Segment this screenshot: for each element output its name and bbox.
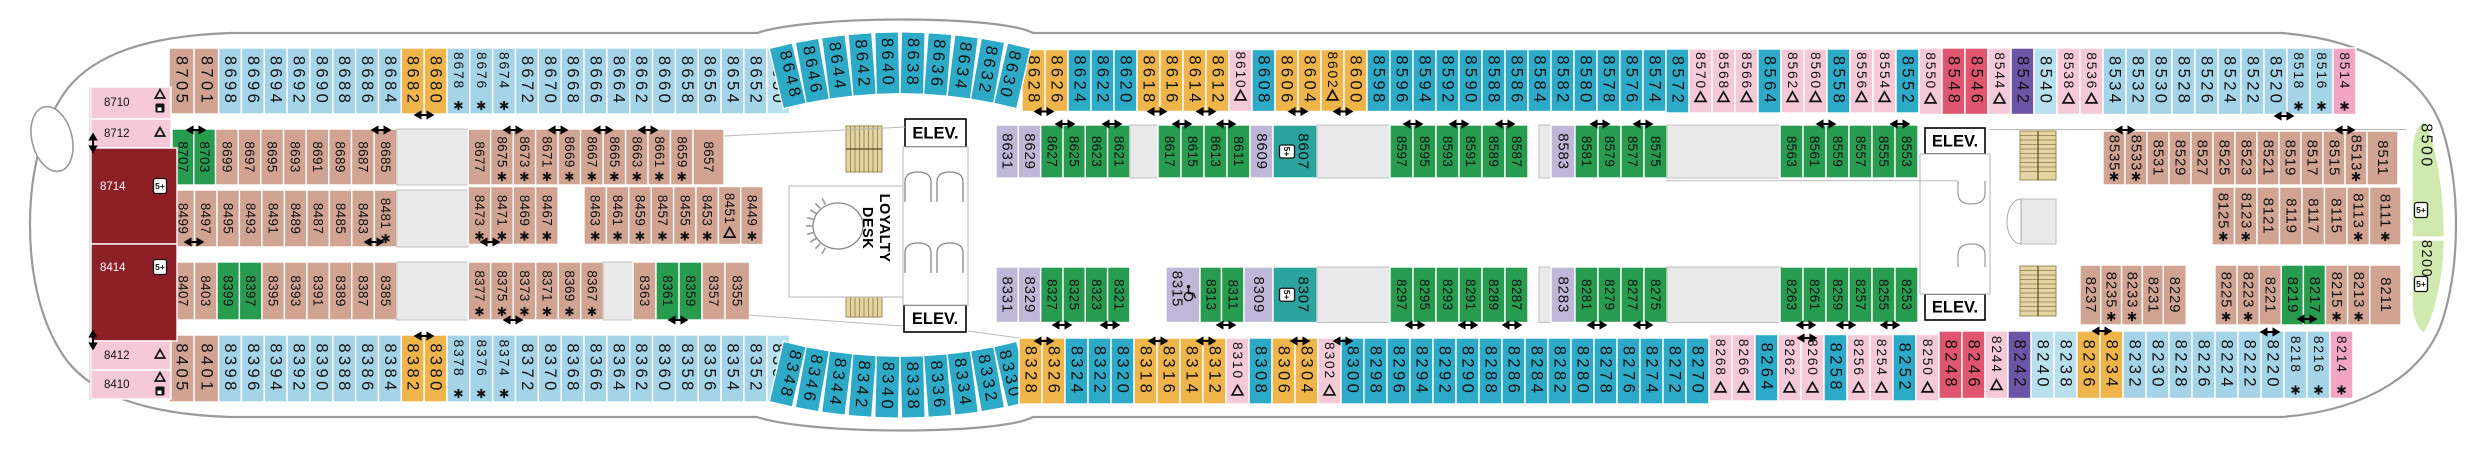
svg-text:8677: 8677 [472,141,487,172]
svg-text:8590: 8590 [1462,55,1480,105]
svg-text:8253: 8253 [1899,279,1914,310]
svg-text:8592: 8592 [1439,55,1457,105]
svg-text:8370: 8370 [541,343,559,393]
svg-text:8584: 8584 [1531,55,1549,105]
svg-text:8355: 8355 [730,275,745,306]
svg-text:8211: 8211 [2377,277,2394,312]
svg-text:8469: 8469 [517,195,532,226]
svg-text:8223: 8223 [2240,272,2257,309]
svg-text:8606: 8606 [1278,55,1296,105]
svg-text:8121: 8121 [2260,198,2277,235]
svg-text:8123: 8123 [2237,193,2254,230]
svg-text:DESK: DESK [859,207,875,249]
svg-text:8222: 8222 [2241,340,2259,390]
svg-text:8313: 8313 [1203,279,1218,310]
svg-text:5+: 5+ [2416,205,2426,215]
svg-text:8368: 8368 [564,343,582,393]
svg-text:8375: 8375 [494,270,509,301]
svg-text:8688: 8688 [335,56,353,106]
svg-text:8625: 8625 [1067,136,1082,167]
svg-text:8373: 8373 [517,270,532,301]
svg-text:8261: 8261 [1807,279,1822,310]
svg-text:8262: 8262 [1782,339,1797,377]
svg-text:8266: 8266 [1736,339,1751,377]
svg-text:8528: 8528 [2175,56,2193,106]
svg-text:8389: 8389 [333,275,348,306]
svg-text:8552: 8552 [1899,56,1917,106]
svg-text:8526: 8526 [2198,56,2216,106]
svg-text:8296: 8296 [1390,346,1408,396]
svg-text:8392: 8392 [290,343,308,393]
svg-text:8714: 8714 [100,181,126,193]
svg-text:ELEV.: ELEV. [912,310,958,328]
svg-text:8216: 8216 [2311,336,2326,374]
svg-text:8352: 8352 [746,343,764,393]
svg-text:8652: 8652 [746,56,764,106]
svg-text:8620: 8620 [1117,55,1135,105]
svg-text:8687: 8687 [355,141,370,172]
svg-text:8499: 8499 [176,203,191,234]
svg-text:8307: 8307 [1295,276,1312,313]
svg-text:8612: 8612 [1209,55,1227,105]
svg-text:8217: 8217 [2306,277,2323,314]
svg-text:8524: 8524 [2221,56,2239,106]
svg-text:8670: 8670 [541,56,559,106]
svg-text:8624: 8624 [1071,55,1089,105]
svg-text:8660: 8660 [655,56,673,106]
svg-text:8113: 8113 [2350,193,2367,228]
svg-text:8356: 8356 [701,343,719,393]
svg-text:8463: 8463 [588,195,603,226]
svg-text:8609: 8609 [1253,133,1270,170]
svg-text:8689: 8689 [333,141,348,172]
svg-text:8589: 8589 [1486,136,1501,167]
svg-text:8534: 8534 [2106,56,2124,106]
svg-text:8591: 8591 [1463,136,1478,167]
svg-text:8384: 8384 [381,343,399,393]
svg-text:8531: 8531 [2150,140,2167,177]
svg-text:8403: 8403 [198,275,213,306]
svg-text:8215: 8215 [2328,272,2345,309]
svg-text:8280: 8280 [1574,346,1592,396]
svg-text:5+: 5+ [1282,147,1292,157]
svg-text:8304: 8304 [1298,346,1316,396]
svg-text:8638: 8638 [903,38,922,89]
svg-text:8527: 8527 [2194,140,2211,177]
svg-text:8658: 8658 [678,56,696,106]
svg-text:8255: 8255 [1876,279,1891,310]
svg-text:8663: 8663 [629,136,644,167]
svg-text:8511: 8511 [2374,140,2391,175]
svg-text:8230: 8230 [2149,340,2167,390]
svg-text:8259: 8259 [1830,279,1845,310]
svg-text:5+: 5+ [2416,279,2426,289]
svg-text:8500: 8500 [2418,123,2435,169]
svg-text:8674: 8674 [497,52,512,90]
svg-text:8548: 8548 [1945,56,1963,106]
svg-text:8268: 8268 [1713,339,1728,377]
svg-text:8529: 8529 [2172,140,2189,177]
svg-text:8326: 8326 [1045,346,1063,396]
svg-text:8678: 8678 [451,52,466,90]
svg-text:8455: 8455 [677,195,692,226]
svg-text:8226: 8226 [2195,340,2213,390]
svg-text:8696: 8696 [244,56,262,106]
svg-text:8410: 8410 [104,379,130,391]
svg-text:8407: 8407 [176,275,191,306]
svg-text:8671: 8671 [539,136,554,167]
svg-text:8274: 8274 [1643,346,1661,396]
svg-text:8578: 8578 [1600,55,1618,105]
svg-text:8673: 8673 [517,136,532,167]
svg-text:8560: 8560 [1808,52,1823,90]
svg-text:8532: 8532 [2129,56,2147,106]
svg-text:8457: 8457 [655,195,670,226]
svg-text:8264: 8264 [1758,343,1776,393]
svg-text:8593: 8593 [1440,136,1455,167]
svg-text:8536: 8536 [2084,52,2099,90]
svg-text:8513: 8513 [2348,135,2365,172]
svg-text:8691: 8691 [310,141,325,172]
svg-text:8533: 8533 [2128,135,2145,172]
svg-text:8272: 8272 [1666,346,1684,396]
svg-text:8231: 8231 [2144,277,2161,314]
svg-text:8668: 8668 [564,56,582,106]
svg-text:8235: 8235 [2103,272,2120,309]
svg-text:8279: 8279 [1602,279,1617,310]
svg-text:8636: 8636 [927,39,949,91]
svg-text:8328: 8328 [1022,346,1040,396]
svg-text:8626: 8626 [1048,55,1066,105]
svg-text:8414: 8414 [100,262,126,274]
svg-text:8340: 8340 [878,362,897,413]
svg-text:8300: 8300 [1344,346,1362,396]
svg-text:8659: 8659 [674,136,689,167]
svg-text:8694: 8694 [267,56,285,106]
svg-text:8516: 8516 [2314,52,2329,90]
svg-text:8669: 8669 [562,136,577,167]
svg-text:8514: 8514 [2337,52,2352,90]
svg-text:8517: 8517 [2304,140,2321,177]
svg-text:8686: 8686 [358,56,376,106]
svg-text:8594: 8594 [1416,55,1434,105]
svg-text:8282: 8282 [1551,346,1569,396]
svg-text:8682: 8682 [404,56,422,106]
svg-text:8263: 8263 [1784,279,1799,310]
svg-text:8292: 8292 [1436,346,1454,396]
svg-text:8623: 8623 [1089,136,1104,167]
svg-text:8698: 8698 [221,56,239,106]
svg-text:8214: 8214 [2334,336,2349,374]
svg-text:8654: 8654 [724,56,742,106]
svg-text:8672: 8672 [518,56,536,106]
svg-text:8308: 8308 [1252,346,1270,396]
svg-text:8323: 8323 [1089,279,1104,310]
svg-text:8657: 8657 [701,141,716,172]
svg-text:8493: 8493 [243,203,258,234]
svg-text:8489: 8489 [288,203,303,234]
svg-text:8611: 8611 [1231,136,1246,166]
svg-text:8449: 8449 [745,195,760,226]
svg-text:8695: 8695 [265,141,280,172]
svg-text:8712: 8712 [104,128,130,140]
svg-text:8564: 8564 [1761,56,1779,106]
svg-text:8617: 8617 [1162,136,1177,167]
svg-text:8412: 8412 [104,350,130,362]
svg-text:8705: 8705 [173,56,191,106]
svg-text:8338: 8338 [903,362,922,413]
svg-text:8380: 8380 [427,343,445,393]
svg-text:8290: 8290 [1459,346,1477,396]
svg-text:8680: 8680 [427,56,445,106]
svg-text:8557: 8557 [1853,136,1868,167]
svg-text:8314: 8314 [1183,346,1201,396]
svg-text:8631: 8631 [999,133,1016,170]
svg-text:8579: 8579 [1602,136,1617,167]
svg-text:8293: 8293 [1440,279,1455,310]
svg-text:8287: 8287 [1509,279,1524,310]
svg-text:8229: 8229 [2166,277,2183,314]
svg-text:8396: 8396 [244,343,262,393]
svg-text:8491: 8491 [266,203,281,234]
svg-text:8622: 8622 [1094,55,1112,105]
svg-text:8385: 8385 [378,275,393,306]
svg-text:8220: 8220 [2264,340,2282,390]
svg-text:8360: 8360 [655,343,673,393]
svg-text:5+: 5+ [155,181,165,191]
svg-text:8693: 8693 [287,141,302,172]
svg-text:8240: 8240 [2034,340,2052,390]
svg-text:8382: 8382 [404,343,422,393]
svg-text:8395: 8395 [266,275,281,306]
svg-text:8473: 8473 [472,195,487,226]
svg-text:8364: 8364 [609,343,627,393]
svg-text:8361: 8361 [660,275,675,306]
svg-text:8115: 8115 [2327,198,2344,233]
svg-text:8582: 8582 [1554,55,1572,105]
svg-text:8666: 8666 [587,56,605,106]
svg-text:8390: 8390 [312,343,330,393]
svg-text:8515: 8515 [2326,140,2343,177]
svg-text:8363: 8363 [637,275,652,306]
svg-text:8596: 8596 [1393,55,1411,105]
svg-text:8320: 8320 [1114,346,1132,396]
svg-text:8257: 8257 [1853,279,1868,310]
svg-text:8610: 8610 [1233,52,1248,90]
svg-text:8242: 8242 [2011,340,2029,390]
svg-text:8542: 8542 [2014,56,2032,106]
svg-text:8697: 8697 [242,141,257,172]
svg-text:8621: 8621 [1111,136,1126,167]
svg-text:8277: 8277 [1625,279,1640,310]
svg-text:8316: 8316 [1160,346,1178,396]
svg-text:8119: 8119 [2282,198,2299,233]
svg-text:8254: 8254 [1874,339,1889,377]
svg-text:8451: 8451 [722,193,737,224]
svg-text:8270: 8270 [1689,346,1707,396]
svg-text:8522: 8522 [2244,56,2262,106]
svg-text:8588: 8588 [1485,55,1503,105]
svg-text:8276: 8276 [1620,346,1638,396]
svg-text:8544: 8544 [1992,52,2007,90]
svg-text:8554: 8554 [1877,52,1892,90]
svg-text:8703: 8703 [197,141,212,172]
svg-text:8324: 8324 [1068,346,1086,396]
svg-text:8583: 8583 [1555,133,1572,170]
svg-text:8233: 8233 [2124,272,2141,309]
svg-text:8604: 8604 [1301,55,1319,105]
svg-text:8387: 8387 [356,275,371,306]
svg-text:8640: 8640 [878,38,897,89]
svg-text:8676: 8676 [474,52,489,90]
svg-text:8218: 8218 [2288,336,2303,374]
svg-text:8563: 8563 [1784,136,1799,167]
svg-text:8555: 8555 [1876,136,1891,167]
svg-text:8289: 8289 [1486,279,1501,310]
svg-text:8399: 8399 [221,275,236,306]
svg-text:8398: 8398 [221,343,239,393]
svg-text:8294: 8294 [1413,346,1431,396]
svg-text:8359: 8359 [683,275,698,306]
svg-text:8117: 8117 [2305,198,2322,233]
svg-text:8250: 8250 [1920,339,1935,377]
svg-text:8377: 8377 [472,270,487,301]
svg-text:5+: 5+ [1282,290,1292,300]
svg-text:8248: 8248 [1942,340,1960,390]
svg-text:8374: 8374 [497,340,512,378]
svg-text:8616: 8616 [1163,55,1181,105]
svg-text:8572: 8572 [1669,56,1687,106]
svg-text:8629: 8629 [1021,133,1038,170]
svg-text:LOYALTY: LOYALTY [876,194,892,263]
svg-text:8538: 8538 [2061,52,2076,90]
svg-text:8675: 8675 [494,136,509,167]
svg-text:8575: 8575 [1648,136,1663,167]
svg-text:8662: 8662 [632,56,650,106]
svg-text:8558: 8558 [1830,56,1848,106]
svg-text:8236: 8236 [2080,340,2098,390]
svg-text:8608: 8608 [1255,55,1273,105]
svg-text:8495: 8495 [221,203,236,234]
svg-text:8615: 8615 [1185,136,1200,167]
svg-text:8286: 8286 [1505,346,1523,396]
svg-text:8378: 8378 [451,340,466,378]
svg-text:8559: 8559 [1830,136,1845,167]
svg-text:8200: 8200 [2418,240,2434,278]
svg-text:8376: 8376 [474,340,489,378]
svg-text:8661: 8661 [652,136,667,167]
svg-text:8306: 8306 [1275,346,1293,396]
svg-text:8342: 8342 [851,360,873,412]
svg-text:8322: 8322 [1091,346,1109,396]
svg-text:8467: 8467 [539,195,554,226]
svg-text:8234: 8234 [2103,340,2121,390]
svg-text:8221: 8221 [2262,277,2279,314]
svg-text:8556: 8556 [1854,52,1869,90]
svg-text:8520: 8520 [2267,56,2285,106]
svg-text:8298: 8298 [1367,346,1385,396]
svg-text:8581: 8581 [1579,136,1594,167]
svg-text:8577: 8577 [1625,136,1640,167]
svg-text:8367: 8367 [585,270,600,301]
svg-text:8550: 8550 [1923,52,1938,90]
svg-text:8562: 8562 [1785,52,1800,90]
svg-text:8405: 8405 [173,343,191,393]
svg-text:8595: 8595 [1417,136,1432,167]
svg-text:8358: 8358 [678,343,696,393]
svg-text:8256: 8256 [1851,339,1866,377]
svg-text:8580: 8580 [1577,55,1595,105]
svg-text:8614: 8614 [1186,55,1204,105]
svg-text:8397: 8397 [243,275,258,306]
svg-text:8232: 8232 [2126,340,2144,390]
svg-text:8521: 8521 [2260,140,2277,177]
svg-text:8213: 8213 [2350,272,2367,309]
svg-text:8331: 8331 [999,277,1016,314]
svg-text:8600: 8600 [1347,55,1365,105]
svg-text:8656: 8656 [701,56,719,106]
svg-text:8278: 8278 [1597,346,1615,396]
svg-text:8246: 8246 [1965,340,1983,390]
svg-text:8228: 8228 [2172,340,2190,390]
svg-text:8284: 8284 [1528,346,1546,396]
svg-text:8125: 8125 [2215,193,2232,230]
svg-text:8602: 8602 [1325,52,1340,90]
svg-text:8225: 8225 [2218,272,2235,309]
svg-text:8459: 8459 [633,195,648,226]
svg-text:8607: 8607 [1295,133,1312,170]
svg-text:ELEV.: ELEV. [1932,133,1978,151]
svg-text:8685: 8685 [378,141,393,172]
svg-text:8369: 8369 [562,270,577,301]
svg-text:8325: 8325 [1067,279,1082,310]
svg-text:8497: 8497 [198,203,213,234]
svg-text:8252: 8252 [1896,343,1914,393]
svg-text:8260: 8260 [1805,339,1820,377]
svg-text:8366: 8366 [587,343,605,393]
svg-text:8523: 8523 [2238,140,2255,177]
svg-text:8710: 8710 [104,97,130,109]
svg-text:8684: 8684 [381,56,399,106]
svg-text:8574: 8574 [1646,55,1664,105]
svg-text:8312: 8312 [1206,346,1224,396]
svg-text:5+: 5+ [155,262,165,272]
svg-text:8525: 8525 [2216,140,2233,177]
svg-text:ELEV.: ELEV. [1932,299,1978,317]
svg-text:8388: 8388 [335,343,353,393]
svg-text:8519: 8519 [2282,140,2299,177]
svg-text:8561: 8561 [1807,136,1822,167]
svg-text:8295: 8295 [1417,279,1432,310]
svg-text:8546: 8546 [1968,56,1986,106]
svg-text:8576: 8576 [1623,55,1641,105]
svg-text:8291: 8291 [1463,279,1478,310]
svg-text:8487: 8487 [311,203,326,234]
svg-text:8321: 8321 [1111,279,1126,310]
svg-text:8237: 8237 [2082,277,2099,314]
svg-text:8618: 8618 [1140,55,1158,105]
svg-text:8664: 8664 [609,56,627,106]
svg-text:8701: 8701 [197,56,215,106]
svg-text:8238: 8238 [2057,340,2075,390]
svg-text:8391: 8391 [311,275,326,306]
svg-text:8362: 8362 [632,343,650,393]
svg-text:8283: 8283 [1555,277,1572,314]
svg-text:8394: 8394 [267,343,285,393]
svg-text:8518: 8518 [2291,52,2306,90]
svg-text:8309: 8309 [1250,277,1267,314]
svg-text:8297: 8297 [1394,279,1409,310]
